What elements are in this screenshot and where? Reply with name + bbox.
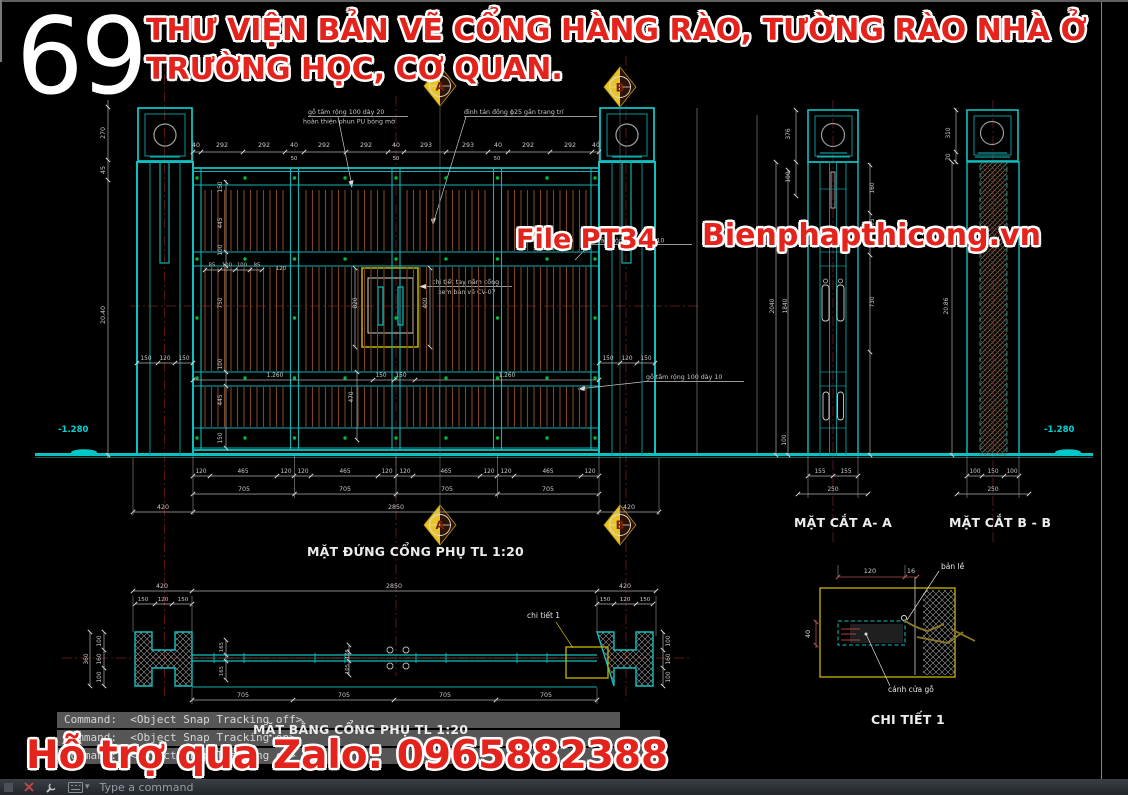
dim-label: 120 xyxy=(864,567,876,575)
dim-label: 120 xyxy=(158,597,169,603)
dim-label: 470 xyxy=(349,391,355,402)
generated-geometry: 4029229240292292402932934029229240505050… xyxy=(58,80,1074,705)
dim-label: 40 xyxy=(494,142,502,149)
frame-edge-right xyxy=(1101,0,1102,779)
dim-label: 100 xyxy=(218,358,224,369)
command-input[interactable]: Type a command xyxy=(100,781,194,794)
dim-label: 150 xyxy=(178,356,189,362)
dim-label: 105 xyxy=(345,664,351,674)
dim-label: 120 xyxy=(399,469,410,475)
dim-label: 100 xyxy=(237,263,248,269)
dim-label: 100 xyxy=(97,671,103,682)
dim-label: 400 xyxy=(423,297,429,308)
dim-label: 150 xyxy=(987,469,998,475)
dim-label: 293 xyxy=(420,142,432,149)
note-wood-top: gỗ tấm rộng 100 dày 20 xyxy=(308,107,384,116)
dim-label: 310 xyxy=(946,127,952,138)
level-marker-left xyxy=(71,449,97,455)
dim-label: 705 xyxy=(441,486,453,493)
lamp-left-icon xyxy=(154,124,176,146)
dim-label: 705 xyxy=(237,692,249,699)
dim-label: 155 xyxy=(840,469,851,475)
watermark-title-line1: THƯ VIỆN BẢN VẼ CỔNG HÀNG RÀO, TƯỜNG RÀO… xyxy=(146,13,1087,48)
dim-label: 465 xyxy=(440,469,451,475)
dim-label: 100 xyxy=(782,434,788,445)
pillar-right xyxy=(599,108,655,455)
dim-label: 40 xyxy=(192,142,200,149)
dim-label: 50 xyxy=(494,156,501,162)
view-title-section-a: MẶT CẮT A- A xyxy=(794,515,892,530)
dim-label: 420 xyxy=(157,504,169,511)
dim-label: 465 xyxy=(237,469,248,475)
note-handle-2: xem bản vẽ CV-07 xyxy=(438,288,496,296)
dim-label: 465 xyxy=(339,469,350,475)
dim-label: 20 xyxy=(946,153,952,161)
frame-edge-top xyxy=(0,0,1128,2)
dim-label: 420 xyxy=(156,583,168,590)
dim-label: 16 xyxy=(907,567,915,575)
level-label-right: -1.280 xyxy=(1044,425,1074,435)
view-title-detail: CHI TIẾT 1 xyxy=(871,712,945,727)
dim-label: 705 xyxy=(542,486,554,493)
view-title-elevation: MẶT ĐỨNG CỔNG PHỤ TL 1:20 xyxy=(307,544,524,559)
lamp-right-icon xyxy=(616,124,638,146)
detail-masonry-hatch xyxy=(923,590,955,675)
dim-label: 40 xyxy=(290,142,298,149)
dim-label: 120 xyxy=(280,469,291,475)
dim-label: 250 xyxy=(827,487,838,493)
dim-label: 40 xyxy=(592,142,600,149)
dim-label: 100 xyxy=(666,635,672,646)
frame-edge-left xyxy=(0,0,2,62)
dim-label: 292 xyxy=(360,142,372,149)
dim-label: 120 xyxy=(195,469,206,475)
dim-label: 292 xyxy=(522,142,534,149)
dim-label: 293 xyxy=(462,142,474,149)
note-finish: hoàn thiện phun PU bóng mờ xyxy=(303,118,395,126)
dim-label: 150 xyxy=(602,356,613,362)
close-icon[interactable] xyxy=(23,781,35,793)
dim-label: 100 xyxy=(786,171,792,182)
dim-label: 705 xyxy=(339,486,351,493)
dim-label: 270 xyxy=(100,127,107,139)
dim-label: 705 xyxy=(238,486,250,493)
dim-label: 120 xyxy=(381,469,392,475)
cad-drawing-canvas[interactable]: gỗ tấm rộng 100 dày 20 hoàn thiện phun P… xyxy=(0,0,1128,795)
dim-label: 120 xyxy=(500,469,511,475)
dim-label: 420 xyxy=(619,583,631,590)
axis-lines xyxy=(62,56,993,700)
dim-label: 165 xyxy=(219,642,225,652)
dim-label: 150 xyxy=(640,597,651,603)
section-marker-letter-b: B xyxy=(616,518,625,532)
dim-label: 160 xyxy=(97,653,103,664)
dim-label: 160 xyxy=(870,182,876,193)
dim-label: 705 xyxy=(540,692,552,699)
lamp-section-b-icon xyxy=(981,122,1004,145)
dim-label: 445 xyxy=(218,394,224,405)
watermark-title-line2: TRƯỜNG HỌC, CƠ QUAN. xyxy=(146,52,563,87)
dim-label: 160 xyxy=(666,653,672,664)
dim-label: 705 xyxy=(338,692,350,699)
plan-detail-ref: chi tiết 1 xyxy=(527,611,560,620)
dim-label: 120 xyxy=(276,266,287,272)
dim-label: 40 xyxy=(392,142,400,149)
detail-leaf-label: cánh cửa gỗ xyxy=(888,685,934,694)
dim-label: 165 xyxy=(219,666,225,676)
dim-label: 150 xyxy=(218,181,224,192)
dim-label: 120 xyxy=(159,356,170,362)
dim-label: 120 xyxy=(621,356,632,362)
dim-label: 100 xyxy=(666,671,672,682)
chevron-down-icon[interactable]: ▾ xyxy=(85,782,90,792)
command-bar[interactable]: ▾ Type a command xyxy=(0,779,1128,795)
dim-label: 85 xyxy=(209,263,216,269)
dim-label: 50 xyxy=(393,156,400,162)
dim-label: 85 xyxy=(254,263,261,269)
dim-label: 1840 xyxy=(783,298,789,313)
dim-label: 150 xyxy=(218,432,224,443)
keyboard-icon[interactable]: ▾ xyxy=(68,782,90,793)
dim-label: 292 xyxy=(564,142,576,149)
command-bar-grip[interactable] xyxy=(4,783,13,792)
dim-label: 150 xyxy=(375,373,386,379)
dim-label: 100 xyxy=(1006,469,1017,475)
dim-label: 40 xyxy=(804,630,812,638)
dim-label: 292 xyxy=(258,142,270,149)
dim-label: 1.260 xyxy=(499,373,516,379)
pillar-left xyxy=(137,108,193,455)
dim-label: 445 xyxy=(218,217,224,228)
dim-label: 730 xyxy=(870,296,876,307)
plan-detail-box xyxy=(566,647,608,678)
dim-label: 100 xyxy=(218,244,224,255)
dim-label: 50 xyxy=(291,156,298,162)
section-marker-letter-b: B xyxy=(616,81,625,95)
gate-plan xyxy=(135,632,653,687)
dim-label: 120 xyxy=(297,469,308,475)
dim-label: 100 xyxy=(222,263,233,269)
dim-label: 150 xyxy=(138,597,149,603)
sheet-number: 69 xyxy=(16,4,145,110)
view-title-section-b: MẶT CẮT B - B xyxy=(949,515,1051,530)
dim-label: 20.86 xyxy=(944,297,950,314)
level-marker-right xyxy=(1055,449,1081,455)
dim-label: 420 xyxy=(623,504,635,511)
watermark-zalo: Hỗ trợ qua Zalo: 0965882388 xyxy=(26,733,668,778)
dim-label: 100 xyxy=(969,469,980,475)
wrench-icon[interactable] xyxy=(45,781,58,794)
dim-label: 120 xyxy=(483,469,494,475)
note-wood-bottom: gỗ tấm rộng 100 dày 10 xyxy=(646,372,722,381)
autocad-viewport: gỗ tấm rộng 100 dày 20 hoàn thiện phun P… xyxy=(0,0,1128,795)
dim-label: 292 xyxy=(318,142,330,149)
watermark-website: Bienphapthicong.vn xyxy=(702,218,1041,253)
dim-label: 100 xyxy=(97,635,103,646)
detail-hinge-pin xyxy=(902,616,907,621)
plan-pillar-left xyxy=(135,632,192,686)
section-b-view xyxy=(967,110,1019,455)
dim-label: 750 xyxy=(218,297,224,308)
watermark-file-label: File PT34 xyxy=(516,224,656,255)
dim-label: 150 xyxy=(395,373,406,379)
dim-label: 465 xyxy=(542,469,553,475)
dim-label: 360 xyxy=(84,653,90,664)
note-rivet: đinh tán đồng ϕ25 gắn trang trí xyxy=(464,107,564,116)
dim-label: 150 xyxy=(600,597,611,603)
dim-label: 20.40 xyxy=(100,306,107,324)
dim-label: 120 xyxy=(584,469,595,475)
dim-label: 820 xyxy=(353,297,359,308)
dim-label: 705 xyxy=(439,692,451,699)
dim-label: 250 xyxy=(987,487,998,493)
dim-label: 2850 xyxy=(388,504,404,511)
dim-label: 150 xyxy=(140,356,151,362)
dim-label: 155 xyxy=(814,469,825,475)
dim-label: 150 xyxy=(640,356,651,362)
dim-label: 105 xyxy=(345,649,351,659)
dim-label: 1.260 xyxy=(267,373,284,379)
dim-label: 45 xyxy=(100,166,107,174)
dim-label: 120 xyxy=(620,597,631,603)
section-marker-letter-a: A xyxy=(436,518,445,532)
dim-label: 2850 xyxy=(386,583,402,590)
dim-label: 2040 xyxy=(770,298,776,313)
detail-1-view xyxy=(820,577,975,677)
dim-label: 376 xyxy=(786,128,792,139)
gate-handle xyxy=(362,268,418,347)
detail-hinge-label: bản lề xyxy=(941,562,965,571)
dim-label: 292 xyxy=(216,142,228,149)
level-label-left: -1.280 xyxy=(58,425,88,435)
dim-label: 150 xyxy=(178,597,189,603)
